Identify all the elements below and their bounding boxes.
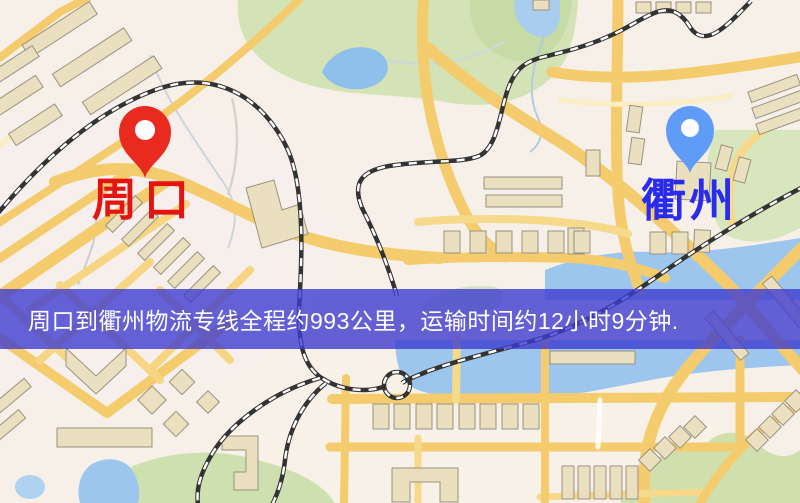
route-info-text: 周口到衢州物流专线全程约993公里，运输时间约12小时9分钟. — [28, 302, 679, 336]
route-info-banner: 周口到衢州物流专线全程约993公里，运输时间约12小时9分钟. — [0, 289, 800, 349]
destination-city-label: 衢州 — [641, 178, 737, 223]
lake-small — [15, 475, 45, 499]
origin-city-label: 周口 — [92, 177, 196, 222]
map-canvas — [0, 0, 800, 503]
map-screenshot: 周口 衢州 周口到衢州物流专线全程约993公里，运输时间约12小时9分钟. — [0, 0, 800, 503]
